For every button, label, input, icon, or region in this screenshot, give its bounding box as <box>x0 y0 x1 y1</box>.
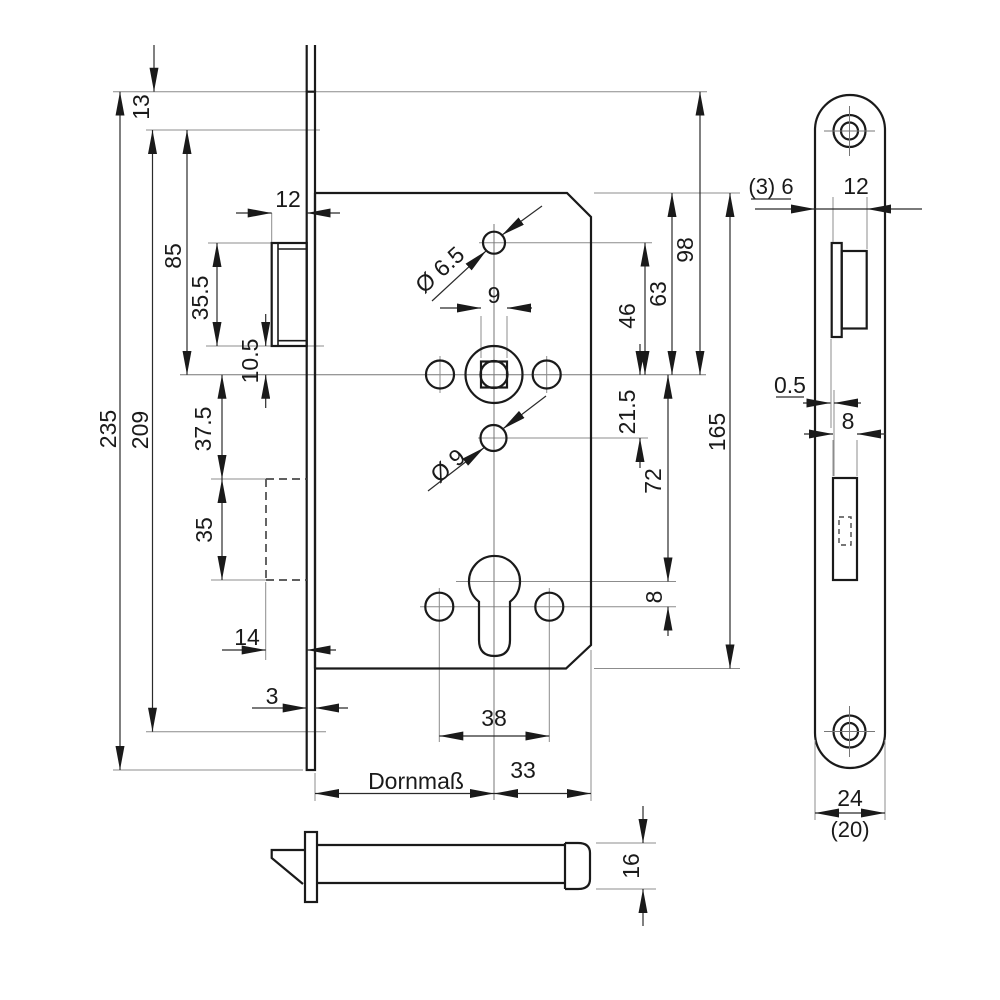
dim-21-5: 21.5 <box>614 390 640 435</box>
dim-3: 3 <box>266 683 279 709</box>
bottom-view <box>272 832 590 902</box>
dim-46: 46 <box>614 303 640 329</box>
dim-38: 38 <box>481 705 507 731</box>
euro-cylinder-hole <box>469 556 520 656</box>
dim-faceplate-offset: (3) 6 <box>748 174 793 199</box>
dim-235: 235 <box>95 410 121 448</box>
dim-8-right: 8 <box>641 591 667 604</box>
dim-16: 16 <box>618 853 644 879</box>
dim-faceplate-12: 12 <box>843 173 869 199</box>
deadbolt-hidden <box>266 479 307 580</box>
dim-9-square: 9 <box>488 282 501 308</box>
dim-35-5: 35.5 <box>187 276 213 321</box>
case-end-cap <box>565 843 590 889</box>
drawing-canvas: 13 235 209 85 35.5 10.5 37.5 35 12 14 3 … <box>0 0 1000 1000</box>
dim-35: 35 <box>191 517 217 543</box>
dim-98: 98 <box>672 237 698 263</box>
dim-37-5: 37.5 <box>190 407 216 452</box>
faceplate-front-view <box>815 95 885 820</box>
dim-209: 209 <box>127 411 153 449</box>
dim-dornmass: Dornmaß <box>368 768 464 794</box>
dim-faceplate-20: (20) <box>830 817 869 842</box>
lock-dimension-drawing: 13 235 209 85 35.5 10.5 37.5 35 12 14 3 … <box>0 0 1000 1000</box>
dimension-lines <box>120 45 922 926</box>
dim-faceplate-0-5: 0.5 <box>774 372 806 398</box>
dim-14: 14 <box>234 624 260 650</box>
dim-165: 165 <box>704 413 730 451</box>
dim-72: 72 <box>640 468 666 494</box>
dim-dia-6-5: Ø 6.5 <box>410 241 469 298</box>
dim-dia-9: Ø 9 <box>425 444 470 488</box>
latch-bolt-side <box>272 243 307 346</box>
dimension-labels: 13 235 209 85 35.5 10.5 37.5 35 12 14 3 … <box>95 94 869 879</box>
dim-12-top: 12 <box>275 186 301 212</box>
latch-flange <box>832 243 842 337</box>
faceplate-screw-hole-top <box>824 106 875 156</box>
deadbolt-hidden-front <box>839 517 851 545</box>
faceplate-section <box>305 832 317 902</box>
dim-faceplate-8: 8 <box>842 408 855 434</box>
dim-10-5: 10.5 <box>237 339 263 384</box>
faceplate-edge-view <box>307 92 315 770</box>
latch-head-front <box>842 251 867 329</box>
dim-85: 85 <box>160 243 186 269</box>
latch-bevel <box>272 850 305 884</box>
dim-33: 33 <box>510 757 536 783</box>
dim-13: 13 <box>128 94 154 120</box>
main-lock-view <box>266 45 591 770</box>
dim-faceplate-24: 24 <box>837 785 863 811</box>
faceplate-screw-hole-bottom <box>824 706 875 757</box>
dim-63: 63 <box>645 281 671 307</box>
deadbolt-slot <box>833 478 857 580</box>
